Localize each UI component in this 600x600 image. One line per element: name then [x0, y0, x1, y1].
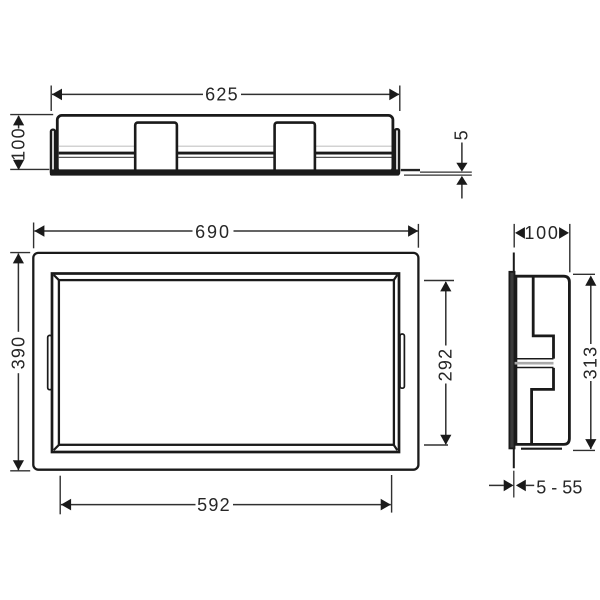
- svg-text:625: 625: [205, 85, 239, 105]
- svg-text:313: 313: [580, 346, 600, 380]
- svg-text:690: 690: [195, 222, 231, 242]
- svg-text:592: 592: [197, 495, 231, 515]
- svg-text:292: 292: [436, 348, 456, 382]
- svg-text:5: 5: [451, 129, 471, 140]
- svg-text:100: 100: [524, 223, 559, 243]
- svg-text:100: 100: [8, 127, 28, 161]
- svg-text:390: 390: [8, 336, 28, 370]
- svg-text:5 - 55: 5 - 55: [536, 477, 582, 497]
